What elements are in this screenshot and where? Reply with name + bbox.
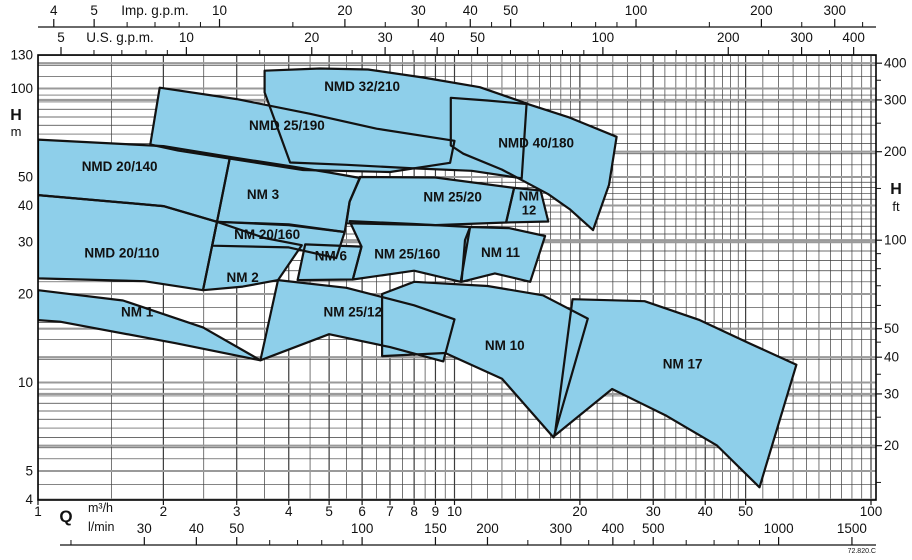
us-gpm-tick-label: 100 [592,30,615,45]
imp-gpm-tick-label: 5 [90,3,98,18]
region-label-nmd-25-190: NMD 25/190 [249,118,325,133]
imp-gpm-axis-title: Imp. g.p.m. [121,3,189,18]
flow-lmin-tick-label: 1000 [764,521,794,536]
flow-m3h-tick-label: 2 [160,504,168,519]
flow-lmin-tick-label: 40 [189,521,204,536]
flow-lmin-tick-label: 1500 [837,521,867,536]
flow-m3h-tick-label: 10 [447,504,462,519]
us-gpm-tick-label: 400 [842,30,865,45]
head-axis-title-right: H [890,181,902,198]
us-gpm-tick-label: 5 [57,30,65,45]
flow-m3h-tick-label: 7 [386,504,394,519]
us-gpm-tick-label: 300 [790,30,813,45]
imp-gpm-tick-label: 300 [823,3,846,18]
head-m-tick-label: 4 [25,492,33,507]
region-label-nm-2: NM 2 [227,270,259,285]
flow-m3h-units: m³/h [88,501,113,515]
region-label-nmd-40-180: NMD 40/180 [498,136,574,151]
flow-m3h-tick-label: 100 [860,504,883,519]
imp-gpm-tick-label: 100 [625,3,648,18]
region-label-nm-6: NM 6 [315,249,348,264]
flow-m3h-tick-label: 40 [698,504,713,519]
flow-m3h-tick-label: 8 [410,504,418,519]
head-ft-tick-label: 20 [884,438,899,453]
imp-gpm-tick-label: 10 [212,3,227,18]
flow-m3h-tick-label: 6 [358,504,366,519]
flow-lmin-tick-label: 400 [602,521,625,536]
pump-selection-chart: NMD 20/140NMD 20/110NMD 25/190NMD 32/210… [0,0,912,560]
flow-m3h-tick-label: 20 [572,504,587,519]
head-m-units: m [11,124,22,139]
flow-lmin-tick-label: 150 [424,521,447,536]
flow-m3h-tick-label: 30 [646,504,661,519]
flow-lmin-tick-label: 200 [476,521,499,536]
us-gpm-tick-label: 50 [470,30,485,45]
imp-gpm-tick-label: 50 [503,3,518,18]
region-label-nm-11: NM 11 [481,245,521,260]
region-label-nm-17: NM 17 [663,357,703,372]
flow-m3h-tick-label: 3 [233,504,241,519]
region-label-nmd-32-210: NMD 32/210 [324,79,400,94]
flow-m3h-tick-label: 1 [34,504,42,519]
flow-m3h-tick-label: 4 [285,504,293,519]
head-ft-tick-label: 200 [884,144,907,159]
region-label-nm-25-20: NM 25/20 [423,189,482,204]
imp-gpm-tick-label: 20 [337,3,352,18]
region-label-nmd-20-140: NMD 20/140 [82,159,158,174]
head-axis-title-left: H [10,107,22,124]
flow-lmin-tick-label: 500 [642,521,665,536]
imp-gpm-tick-label: 4 [50,3,58,18]
head-ft-tick-label: 100 [884,233,907,248]
head-m-tick-label: 30 [18,235,33,250]
us-gpm-axis-title: U.S. g.p.m. [86,30,154,45]
head-m-tick-label: 40 [18,198,33,213]
head-m-tick-label: 10 [18,375,33,390]
us-gpm-tick-label: 40 [430,30,445,45]
region-label-nm-12: NM12 [519,188,539,217]
head-m-tick-label: 130 [10,48,33,63]
flow-lmin-tick-label: 50 [229,521,244,536]
imp-gpm-tick-label: 30 [411,3,426,18]
head-ft-tick-label: 300 [884,92,907,107]
us-gpm-tick-label: 200 [717,30,740,45]
flow-lmin-units: l/min [88,520,114,534]
head-m-tick-label: 100 [10,81,33,96]
region-label-nm-1: NM 1 [121,305,154,320]
head-ft-tick-label: 30 [884,386,899,401]
flow-lmin-tick-label: 30 [137,521,152,536]
head-m-tick-label: 5 [25,464,33,479]
us-gpm-tick-label: 20 [304,30,319,45]
region-label-nm-25-160: NM 25/160 [374,247,440,262]
flow-lmin-tick-label: 100 [351,521,374,536]
us-gpm-tick-label: 30 [378,30,393,45]
region-label-nmd-20-110: NMD 20/110 [84,245,159,260]
imp-gpm-tick-label: 40 [463,3,478,18]
chart-svg: NMD 20/140NMD 20/110NMD 25/190NMD 32/210… [0,0,912,560]
imp-gpm-tick-label: 200 [750,3,773,18]
flow-axis-title: Q [59,507,72,526]
region-label-nm-3: NM 3 [247,187,280,202]
head-ft-units: ft [892,199,900,214]
flow-m3h-tick-label: 9 [432,504,440,519]
flow-m3h-tick-label: 5 [325,504,333,519]
head-m-tick-label: 20 [18,286,33,301]
region-label-nm-10: NM 10 [485,338,525,353]
head-ft-tick-label: 400 [884,56,907,71]
flow-lmin-tick-label: 300 [550,521,573,536]
region-label-nm-20-160: NM 20/160 [234,227,300,242]
flow-m3h-tick-label: 50 [738,504,753,519]
us-gpm-tick-label: 10 [179,30,194,45]
figure-code: 72.820.C [848,548,876,555]
head-ft-tick-label: 40 [884,350,899,365]
region-label-nm-25-12: NM 25/12 [324,305,383,320]
head-ft-tick-label: 50 [884,321,899,336]
head-m-tick-label: 50 [18,170,33,185]
